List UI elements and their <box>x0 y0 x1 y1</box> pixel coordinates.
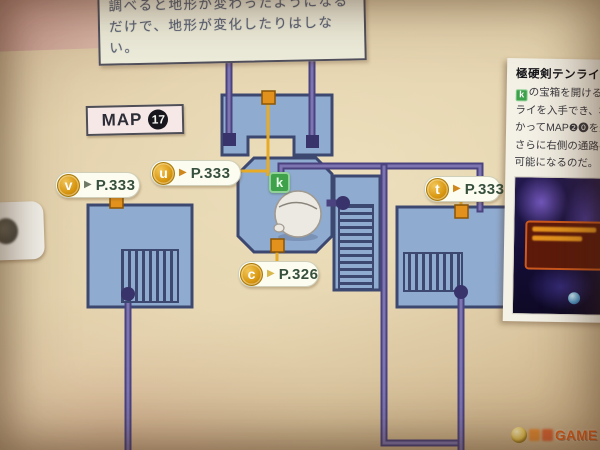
door-square-top-right <box>306 135 319 148</box>
passage-dot-left <box>121 287 135 301</box>
note-box: 調べると地形が変わったようになる だけで、地形が変化したりはしない。 <box>97 0 366 66</box>
treasure-letter-v: v <box>57 174 80 197</box>
guidebook-page-photo: 調べると地形が変わったようになる だけで、地形が変化したりはしない。 MAP 1… <box>0 0 600 450</box>
marker-t-square <box>455 205 468 218</box>
map-number-label: MAP 17 <box>86 104 185 136</box>
page-ref-t: t ▶ P.333 <box>424 176 501 202</box>
sidebar-line: かってMAP❷⓿を進めば、 <box>515 119 600 138</box>
map-number-badge: 17 <box>148 109 168 129</box>
watermark-glyph <box>529 429 540 441</box>
treasure-letter-t: t <box>426 178 449 201</box>
watermark-text: GAME <box>555 428 598 443</box>
sidebar-line: さらに右側の通路へ移動が <box>515 137 600 156</box>
page-ref-u-text: P.333 <box>191 165 231 182</box>
passage-dot-center <box>336 196 350 210</box>
stairs-right-room <box>404 253 462 291</box>
arrow-icon: ▶ <box>267 269 275 279</box>
arrow-icon: ▶ <box>179 168 187 178</box>
site-watermark: GAME <box>511 427 598 443</box>
arrow-icon: ▶ <box>84 180 92 190</box>
sidebar-line-text: の宝箱を開けると極硬剣テン <box>529 86 600 100</box>
page-ref-t-text: P.333 <box>465 181 505 198</box>
key-badge-inline: k <box>516 89 528 101</box>
stairs-middle-room <box>339 205 373 289</box>
page-ref-u: u ▶ P.333 <box>150 160 241 186</box>
sidebar-line: kの宝箱を開けると極硬剣テン <box>516 84 600 103</box>
sidebar-tip-card: 極硬剣テンライを入手 kの宝箱を開けると極硬剣テン ライを入手でき、右側に向 か… <box>503 58 600 322</box>
door-square-top-left <box>223 133 236 146</box>
watermark-logo-icon <box>511 427 527 443</box>
screenshot-dialog-box <box>525 220 600 270</box>
sidebar-line: ライを入手でき、右側に向 <box>515 102 600 121</box>
page-ref-c-text: P.326 <box>279 266 319 283</box>
map-label-text: MAP <box>101 110 142 131</box>
passage-dot-right <box>454 285 468 299</box>
page-ref-v-text: P.333 <box>96 177 136 194</box>
note-line-2: だけで、地形が変化したりはしない。 <box>109 11 356 58</box>
page-ref-v: v ▶ P.333 <box>55 172 140 198</box>
key-door-badge: k <box>269 172 290 193</box>
sidebar-body: kの宝箱を開けると極硬剣テン ライを入手でき、右側に向 かってMAP❷⓿を進めば… <box>514 84 600 173</box>
arrow-icon: ▶ <box>453 184 461 194</box>
page-ref-c: c ▶ P.326 <box>238 261 319 287</box>
marker-u-square <box>262 91 275 104</box>
screenshot-blue-orb <box>568 292 580 304</box>
treasure-letter-c: c <box>240 263 263 286</box>
sphere-spout <box>274 224 284 232</box>
sidebar-line: 可能になるのだ。 <box>514 154 600 173</box>
watermark-glyph <box>542 429 553 441</box>
sidebar-title: 極硬剣テンライを入手 <box>516 65 600 83</box>
treasure-letter-u: u <box>152 162 175 185</box>
game-screenshot <box>512 176 600 316</box>
marker-c-square <box>271 239 284 252</box>
